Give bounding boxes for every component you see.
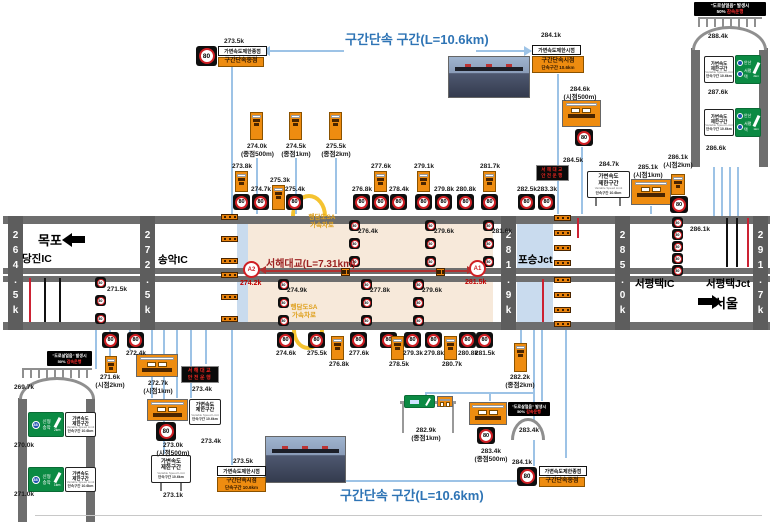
green-exit-sign: 안산서평택1km [735, 108, 761, 137]
junction-poseung: 포승Jct [518, 252, 553, 267]
section-control-title-top: 구간단속 구간(L=10.6km) [345, 29, 489, 48]
km-label: 278.5k [388, 361, 410, 369]
km-label: 282.5k [516, 186, 538, 194]
connector-line [425, 392, 535, 394]
connector-line [565, 330, 567, 458]
km-label: 279.8k [423, 350, 445, 358]
speed-limit-80-sign: 80 [95, 313, 106, 324]
road-tick-line [542, 279, 544, 322]
km-label: 269.7k [10, 384, 38, 392]
ice-warning-sign: "도로살얼음" 발생시50% 감속운행 [47, 351, 92, 366]
road-tick-line [29, 278, 31, 322]
km-label: 279.1k [413, 163, 435, 171]
led-warning-sign: 서해대교안전운행 [181, 366, 219, 383]
speed-limit-80-sign: 80 [372, 194, 389, 210]
lane-gantry-signal [221, 294, 238, 300]
lane-gantry-signal [221, 258, 238, 264]
lane-gantry-signal [221, 316, 238, 322]
lane-gantry-signal [554, 230, 571, 236]
interchange-songak: 송악IC [158, 252, 188, 267]
vsl-zone-orange-sign [147, 399, 188, 421]
variable-speed-limit-sign: 가변속도제한구간Variable Speed Limit단속구간 10.6km [65, 467, 96, 492]
variable-speed-limit-sign: 가변속도제한구간Variable Speed Limit단속구간 10.6km [151, 455, 191, 483]
km-label: 275.3k [269, 177, 291, 185]
section-end-label: 구간단속종점 [539, 477, 585, 487]
section-start-label: 구간단속시점단속구간 10.6km [217, 477, 266, 492]
lane-gantry-signal [221, 272, 238, 278]
km-label: 275.4k [284, 186, 306, 194]
connector-line [713, 167, 715, 216]
gantry-leg [452, 403, 454, 433]
speed-limit-80-sign: 80 [672, 241, 683, 252]
km-label-a2: 274.2k [240, 280, 261, 289]
speed-limit-80-sign: 80 [483, 238, 494, 249]
road-tick-line [577, 218, 579, 238]
speed-limit-80-sign: 80 [670, 196, 688, 213]
variable-speed-limit-sign: 가변속도제한구간Variable Speed Limit단속구간 10.6km [189, 399, 221, 425]
speed-limit-80-sign: 80 [575, 129, 593, 146]
km-label: 274.0k(종점500m) [241, 143, 273, 159]
bridge-length-label: 서해대교(L=7.31km) [266, 255, 355, 270]
speed-limit-80-sign: 80 [95, 295, 106, 306]
km-label: 276.8k [351, 186, 373, 194]
speed-limit-80-sign: 80 [308, 332, 325, 348]
connector-line [520, 330, 522, 343]
ramp-road-edge [691, 48, 700, 167]
speed-limit-80-sign: 80 [252, 194, 269, 210]
vsl-notice-sign [235, 171, 248, 192]
sign-legs [595, 198, 621, 206]
vsl-notice-sign [417, 171, 430, 192]
km-post: 272.5k [140, 216, 155, 330]
variable-speed-limit-sign: 가변속도제한구간Variable Speed Limit단속구간 10.6km [704, 109, 734, 136]
connector-line [721, 167, 723, 216]
km-label: 270.0k [10, 442, 38, 450]
km-label: 272.7k(시점1km) [140, 380, 176, 396]
green-exit-sign: 38신형송악1km [28, 467, 64, 492]
speed-limit-80-sign: 80 [425, 238, 436, 249]
speed-limit-80-sign: 80 [672, 229, 683, 240]
speed-limit-80-sign: 80 [361, 315, 372, 326]
speed-limit-80-sign: 80 [538, 194, 555, 210]
connector-line [737, 167, 739, 216]
km-label: 280.7k [441, 361, 463, 369]
speed-limit-80-sign: 80 [518, 194, 535, 210]
enforcement-zone-shading [517, 282, 553, 322]
km-label: 284.5k [560, 157, 586, 165]
connector-line [476, 50, 529, 52]
vsl-zone-orange-sign [562, 100, 601, 127]
km-label: 272.4k [125, 350, 147, 358]
speed-limit-80-sign: 80 [353, 194, 370, 210]
km-label: 273.5k [228, 458, 258, 466]
km-label: 288.4k [703, 33, 733, 41]
km-label: 282.9k(종점1km) [408, 427, 444, 443]
lane-gantry-signal [436, 268, 445, 276]
ice-warning-sign: "도로살얼음" 발생시50% 감속운행 [694, 2, 766, 16]
vsl-notice-sign [329, 112, 342, 140]
vsl-notice-sign [374, 171, 387, 192]
seoul-arrow-icon [698, 298, 712, 305]
connector-line [729, 167, 731, 216]
vsl-notice-sign [250, 112, 263, 140]
vsl-start-label: 가변속도제한시점 [217, 466, 266, 476]
km-label: 274.6k [275, 350, 297, 358]
km-label: 283.4k(종점500m) [473, 448, 509, 464]
section-control-title-bottom: 구간단속 구간(L=10.6km) [340, 485, 484, 504]
sa-ramp-label: 행담도SA가속차로 [282, 304, 326, 320]
km-label: 271.6k(시점2km) [92, 374, 128, 390]
arrowhead [524, 46, 532, 56]
lane-gantry-signal [221, 236, 238, 242]
vsl-zone-orange-sign [469, 402, 507, 425]
vsl-zone-orange-sign [631, 179, 671, 205]
lane-gantry-signal [554, 307, 571, 313]
km-label: 280.8k [455, 186, 477, 194]
km-label: 273.5k [219, 38, 249, 46]
speed-limit-80-sign: 80 [413, 315, 424, 326]
km-label: 275.5k [306, 350, 328, 358]
speed-limit-80-sign: 80 [476, 332, 493, 348]
variable-speed-limit-sign: 가변속도제한구간Variable Speed Limit단속구간 10.6km [704, 56, 734, 83]
km-label: 277.6k [370, 163, 392, 171]
lane-gantry-signal [554, 292, 571, 298]
km-label: 276.8k [328, 361, 350, 369]
km-label: 274.9k [285, 287, 309, 295]
speed-limit-80-sign: 80 [349, 238, 360, 249]
speed-limit-80-sign: 80 [457, 194, 474, 210]
speed-limit-80-sign: 80 [459, 332, 476, 348]
lane-gantry-signal [554, 277, 571, 283]
vsl-start-label: 가변속도제한시점 [532, 45, 581, 55]
junction-seopyeongtaek: 서평택Jct [706, 276, 750, 291]
km-label: 281.5k [474, 350, 496, 358]
interchange-dangjin: 당진IC [22, 251, 52, 266]
speed-limit-80-sign: 80 [672, 265, 683, 276]
km-label: 282.2k(종점2km) [502, 374, 538, 390]
speed-limit-80-sign: 80 [404, 332, 421, 348]
green-exit-sign [404, 395, 435, 408]
connector-line [231, 330, 233, 465]
destination-seoul: 서울 [714, 293, 738, 312]
camera-point-a1: A1 [469, 260, 486, 277]
km-label: 279.6k [420, 287, 444, 295]
km-post: 291.7k [753, 216, 768, 330]
connector-line [231, 67, 233, 214]
speed-limit-80-sign: 80 [350, 332, 367, 348]
variable-speed-limit-sign: 가변속도제한구간Variable Speed Limit단속구간 10.6km [65, 412, 96, 437]
connector-line [335, 158, 337, 214]
km-label: 283.4k [516, 427, 542, 435]
km-label: 284.7k [596, 161, 622, 169]
green-exit-sign: 안산서평택2km [735, 55, 761, 84]
km-label: 273.1k [160, 492, 186, 500]
km-label: 273.4k [189, 386, 215, 394]
km-post: 264.5k [8, 216, 23, 330]
road-tick-line [726, 218, 728, 267]
road-tick-line [59, 278, 61, 322]
km-label: 278.4k [388, 186, 410, 194]
speed-limit-80-sign: 80 [435, 194, 452, 210]
road-tick-line [44, 278, 46, 322]
speed-limit-80-sign: 80 [415, 194, 432, 210]
section-end-label: 구간단속종점 [218, 57, 264, 67]
vsl-notice-sign [444, 336, 457, 360]
speed-limit-80-sign: 80 [277, 332, 294, 348]
gantry-photo [448, 56, 530, 98]
vsl-zone-orange-sign [437, 396, 453, 407]
km-label: 274.7k [250, 186, 272, 194]
speed-limit-80-sign: 80 [286, 194, 303, 210]
km-label: 273.0k(시점500m) [155, 442, 191, 458]
ice-warning-sign: "도로살얼음" 발생시50% 감속운행 [508, 402, 550, 416]
vsl-end-label: 가변속도제한종점 [539, 466, 587, 476]
ramp-road-edge [18, 398, 27, 522]
led-warning-sign: 서해대교안전운행 [536, 165, 569, 181]
km-label-a1: 281.5k [465, 279, 486, 288]
lane-gantry-signal [554, 215, 571, 221]
speed-limit-80-sign: 80 [127, 332, 144, 348]
vsl-end-label: 가변속도제한종점 [218, 46, 267, 56]
connector-line [541, 330, 543, 401]
km-label: 286.6k [701, 145, 731, 153]
camera-point-a2: A2 [243, 261, 260, 278]
km-label: 271.0k [10, 491, 38, 499]
km-post: 285.0k [615, 216, 630, 330]
speed-limit-80-sign: 80 [196, 46, 217, 66]
km-label: 284.6k(시점500m) [562, 86, 598, 102]
vsl-notice-sign [483, 171, 496, 192]
km-label: 283.3k [536, 186, 558, 194]
km-label: 286.1k [688, 226, 712, 234]
interchange-seopyeongtaek: 서평택IC [635, 276, 674, 291]
connector-line [268, 50, 344, 52]
speed-limit-80-sign: 80 [481, 194, 498, 210]
km-label: 286.1k(시점2km) [660, 154, 696, 170]
destination-mokpo: 목포 [38, 230, 62, 249]
speed-limit-80-sign: 80 [233, 194, 250, 210]
road-tick-line [736, 218, 738, 267]
section-start-label: 구간단속시점단속구간 10.6km [532, 56, 584, 73]
speed-limit-80-sign: 80 [102, 332, 119, 348]
km-label: 271.5k [105, 286, 129, 294]
lane-gantry-signal [554, 260, 571, 266]
connector-line [533, 330, 535, 466]
road-tick-line [747, 218, 749, 267]
lane-gantry-signal [221, 214, 238, 220]
speed-limit-80-sign: 80 [361, 297, 372, 308]
speed-limit-80-sign: 80 [477, 427, 495, 444]
km-label: 279.3k [402, 350, 424, 358]
km-label: 277.6k [348, 350, 370, 358]
lane-gantry-signal [554, 245, 571, 251]
speed-limit-80-sign: 80 [425, 332, 442, 348]
km-label: 281.7k [479, 163, 501, 171]
connector-line [95, 330, 97, 369]
speed-limit-80-sign: 80 [413, 297, 424, 308]
speed-limit-80-sign: 80 [390, 194, 407, 210]
speed-limit-80-sign: 80 [517, 467, 537, 486]
connector-line [650, 206, 652, 214]
km-label: 287.6k [703, 89, 733, 97]
connector-line [205, 330, 207, 364]
km-label: 279.6k [432, 228, 456, 236]
sign-legs [160, 483, 182, 491]
km-label: 275.5k(종점2km) [320, 143, 352, 159]
km-label: 273.8k [231, 163, 253, 171]
km-label: 284.1k [507, 459, 537, 467]
mokpo-arrow-icon [70, 236, 85, 243]
vsl-notice-sign [105, 356, 117, 373]
sa-ramp-label: 행담도SA가속차로 [300, 214, 344, 230]
km-label: 281.6k [490, 228, 514, 236]
km-label: 279.8k [433, 186, 455, 194]
vsl-notice-sign [289, 112, 302, 140]
km-label: 276.4k [356, 228, 380, 236]
connector-line [489, 393, 491, 401]
km-label: 277.8k [368, 287, 392, 295]
speed-limit-80-sign: 80 [672, 253, 683, 264]
gantry-photo [265, 436, 346, 483]
arrowhead [259, 266, 266, 274]
km-label: 273.4k [198, 438, 224, 446]
speed-limit-80-sign: 80 [156, 422, 176, 441]
page-edge-line [35, 515, 762, 516]
km-label: 284.1k [536, 32, 566, 40]
speed-limit-80-sign: 80 [672, 217, 683, 228]
vsl-notice-sign [514, 343, 527, 372]
vsl-notice-sign [331, 336, 344, 360]
variable-speed-limit-sign: 가변속도제한구간Variable Speed Limit단속구간 10.6km [587, 171, 630, 198]
section-speed-enforcement-diagram: 구간단속 구간(L=10.6km) 구간단속 구간(L=10.6km) 서해대교… [0, 0, 779, 522]
lane-gantry-signal [554, 321, 571, 327]
speed-limit-80-sign: 80 [425, 256, 436, 267]
km-label: 274.5k(종점1km) [280, 143, 312, 159]
vsl-notice-sign [671, 174, 685, 195]
green-exit-sign: 38신형송악2km [28, 412, 64, 437]
